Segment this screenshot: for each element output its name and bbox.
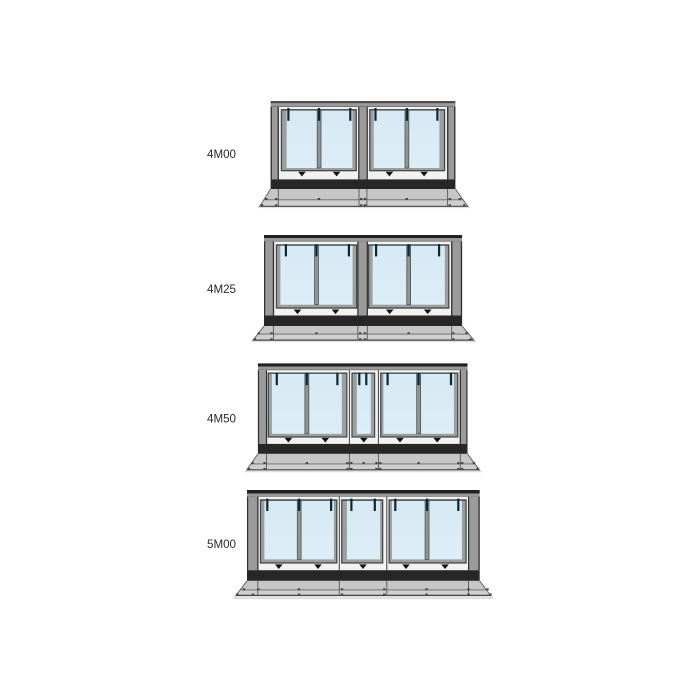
svg-text:4M00: 4M00: [207, 148, 236, 161]
svg-text:5M00: 5M00: [207, 538, 236, 551]
svg-text:4M25: 4M25: [207, 283, 236, 296]
svg-text:4M50: 4M50: [207, 412, 236, 425]
